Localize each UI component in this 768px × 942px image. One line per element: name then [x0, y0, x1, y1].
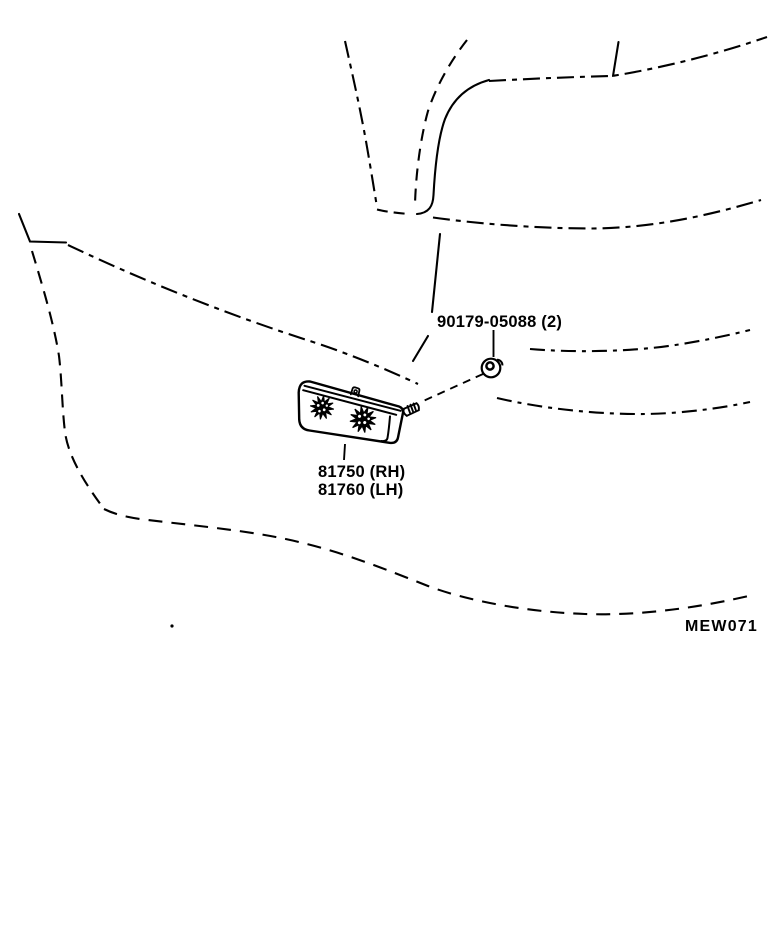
bumper-bottom-dash-line — [104, 509, 753, 614]
trunk-gutter-dash-line — [415, 40, 467, 204]
grommet-inner-circle — [486, 362, 493, 369]
rear-pillar-dash-line — [345, 41, 377, 207]
bumper-mid-upper-dash-line — [530, 330, 750, 351]
screw-dashed-leader-line — [421, 374, 483, 402]
side-marker-lamp — [299, 381, 419, 443]
bumper-left-dash-line — [32, 251, 104, 509]
screw-grommet — [482, 359, 503, 378]
diagram-canvas: 90179-05088 (2) 81750 (RH) 81760 (LH) ME… — [0, 0, 768, 942]
lamp-part-number-rh-label: 81750 (RH) — [318, 463, 405, 481]
figure-code-label: MEW071 — [685, 618, 758, 635]
left-edge-line — [19, 214, 66, 243]
body-side-dash-line — [68, 245, 418, 384]
trunk-corner-line — [417, 80, 489, 214]
trunk-tick-line — [613, 42, 619, 76]
lamp-stud-tip — [417, 403, 419, 410]
body-top-right-dash-line — [489, 37, 767, 81]
lamp-leader-line — [344, 444, 345, 460]
lamp-stud — [403, 403, 419, 416]
screw-part-number-label: 90179-05088 (2) — [437, 313, 562, 331]
parts-diagram-page: 90179-05088 (2) 81750 (RH) 81760 (LH) ME… — [0, 0, 768, 942]
lamp-stud-base — [403, 409, 406, 416]
beltline-dash-line — [433, 200, 761, 229]
bumper-seam-line-lower — [413, 336, 428, 361]
bumper-seam-line-upper — [432, 234, 440, 312]
bumper-mid-lower-dash-line — [497, 398, 750, 414]
lamp-part-number-lh-label: 81760 (LH) — [318, 481, 403, 499]
beltline-left-dash-line — [377, 210, 409, 215]
car-body-outline — [19, 37, 767, 628]
lamp-mounting-tab-hole — [354, 390, 357, 393]
stray-dot — [170, 624, 173, 627]
